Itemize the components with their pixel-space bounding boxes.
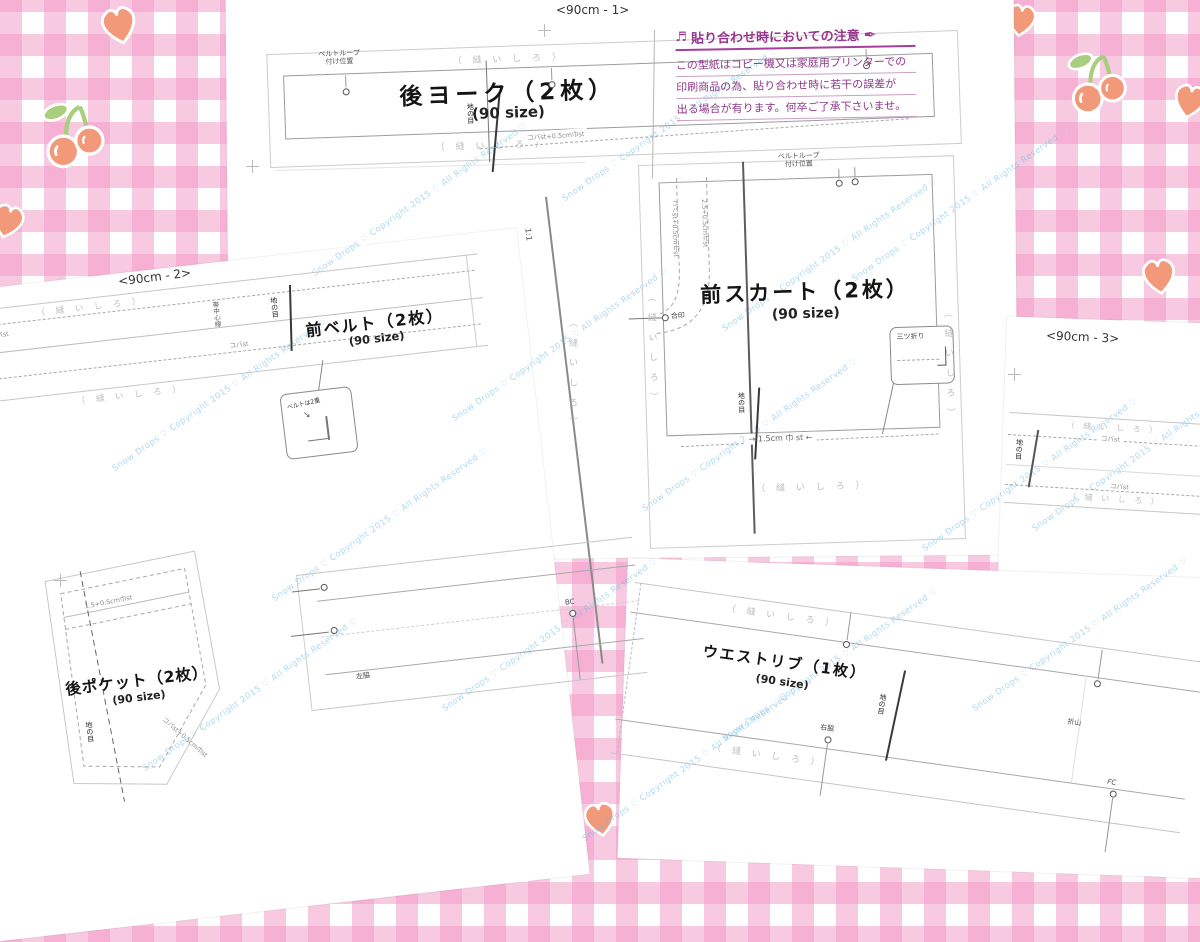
notch-circle xyxy=(569,610,577,618)
seam-allowance-label: （ 縫 い し ろ ） xyxy=(566,318,579,430)
piece-front-belt-right-portion: （ 縫 い し ろ ） （ 縫 い し ろ ） コバst コバst 地の目 xyxy=(1002,402,1200,536)
seam-allowance-label: （ 縫 い し ろ ） xyxy=(726,601,839,630)
cherry-motif xyxy=(1060,46,1132,118)
belt-double-label: ベルトは2重 xyxy=(286,395,321,411)
belt-loop-position-label: ベルトループ 付け位置 xyxy=(778,151,820,168)
stitch-line xyxy=(317,565,635,602)
stitch-line xyxy=(326,638,644,675)
pocket-stitch-label: コバst+0.5cm巾st xyxy=(669,200,681,257)
note-text-line: 出る場合が有ります。何卒ご了承下さいませ。 xyxy=(676,95,916,121)
left-side-label: 左脇 xyxy=(356,671,371,681)
heart-motif xyxy=(0,193,35,247)
grain-line xyxy=(1028,430,1039,487)
front-center-label: FC xyxy=(1107,778,1117,787)
edge-stitch-label: コバst xyxy=(0,328,9,340)
paste-note: ♬ 貼り合わせ時においての注意 ✒ この型紙はコピー機又は家庭用プリンターでの … xyxy=(675,24,917,121)
registration-cross-icon xyxy=(1008,368,1021,381)
cut-line-end xyxy=(296,575,312,710)
notch-circle xyxy=(1093,680,1101,688)
grain-label: 地の目 xyxy=(877,693,888,715)
edge-stitch-label: コバst xyxy=(1107,480,1133,492)
note-title: 貼り合わせ時においての注意 xyxy=(691,25,860,47)
belt-loop-position-label: ベルトループ 付け位置 xyxy=(318,49,360,67)
fold-peak-line xyxy=(1071,676,1087,783)
cherry-motif xyxy=(34,96,110,172)
scale-label: 1:1 xyxy=(523,227,534,241)
belt-double-callout: ベルトは2重 ↘ xyxy=(279,386,359,460)
grain-label: 地の目 xyxy=(737,392,746,413)
notch-circle xyxy=(843,641,851,649)
fold-dash-line xyxy=(897,359,939,361)
triple-fold-label: 三ツ折り xyxy=(896,332,924,341)
heart-motif xyxy=(90,0,148,53)
music-note-icon: ♬ xyxy=(675,30,687,45)
notch-line xyxy=(847,612,852,640)
heart-motif xyxy=(1133,249,1185,301)
edge-stitch-label: コバst xyxy=(1098,432,1124,444)
registration-cross-icon xyxy=(538,24,551,37)
arrow-left-icon: ← xyxy=(806,433,813,442)
notch-circle xyxy=(320,583,328,591)
fold-dash-line xyxy=(321,600,639,637)
belt-center-label: 帯中心線 xyxy=(209,301,222,328)
stitch-line xyxy=(615,719,1185,800)
registration-cross-icon xyxy=(246,160,259,173)
callout-arrow: ↘ xyxy=(302,410,311,421)
callout-diagram-line xyxy=(308,438,330,442)
piece-waist-rib-left-portion: 左脇 BC xyxy=(282,521,651,749)
notch-circle xyxy=(330,627,338,635)
pen-icon: ✒ xyxy=(863,25,876,43)
callout-diagram-line xyxy=(325,416,330,440)
notch-line xyxy=(1098,650,1103,680)
grain-label: 地の目 xyxy=(269,296,279,318)
cut-line-end xyxy=(466,255,477,347)
heart-motif xyxy=(1164,74,1200,126)
piece-back-pocket: 1.5+0.5cm巾st 後ポケット（2枚） (90 size) 地の目 コバs… xyxy=(6,536,252,828)
pocket-opening-curve xyxy=(646,176,741,354)
back-center-label: BC xyxy=(565,598,575,607)
sewing-pattern-sheets-photo: { "background": { "gingham_pink": "#F3A0… xyxy=(0,0,1200,848)
notch-line xyxy=(573,618,581,680)
grain-label: 地の目 xyxy=(1014,438,1023,459)
notch-label: 合印 xyxy=(671,312,685,320)
page-label-90cm-1: <90cm - 1> xyxy=(556,3,629,17)
fold-line xyxy=(1006,464,1200,477)
notch-leader-line xyxy=(292,588,320,592)
notch-line xyxy=(820,742,829,796)
piece-front-skirt: コバst+0.5cm巾st 2.5+0.5cm巾st 合印 ベルトループ 付け位… xyxy=(636,143,971,563)
fold-peak-label: 折山 xyxy=(1067,718,1082,728)
right-side-label: 右脇 xyxy=(820,723,835,733)
edge-stitch-label: コバst xyxy=(226,338,252,351)
pocket-stitch-label: 2.5+0.5cm巾st xyxy=(699,199,711,248)
notch-line xyxy=(1105,796,1114,852)
